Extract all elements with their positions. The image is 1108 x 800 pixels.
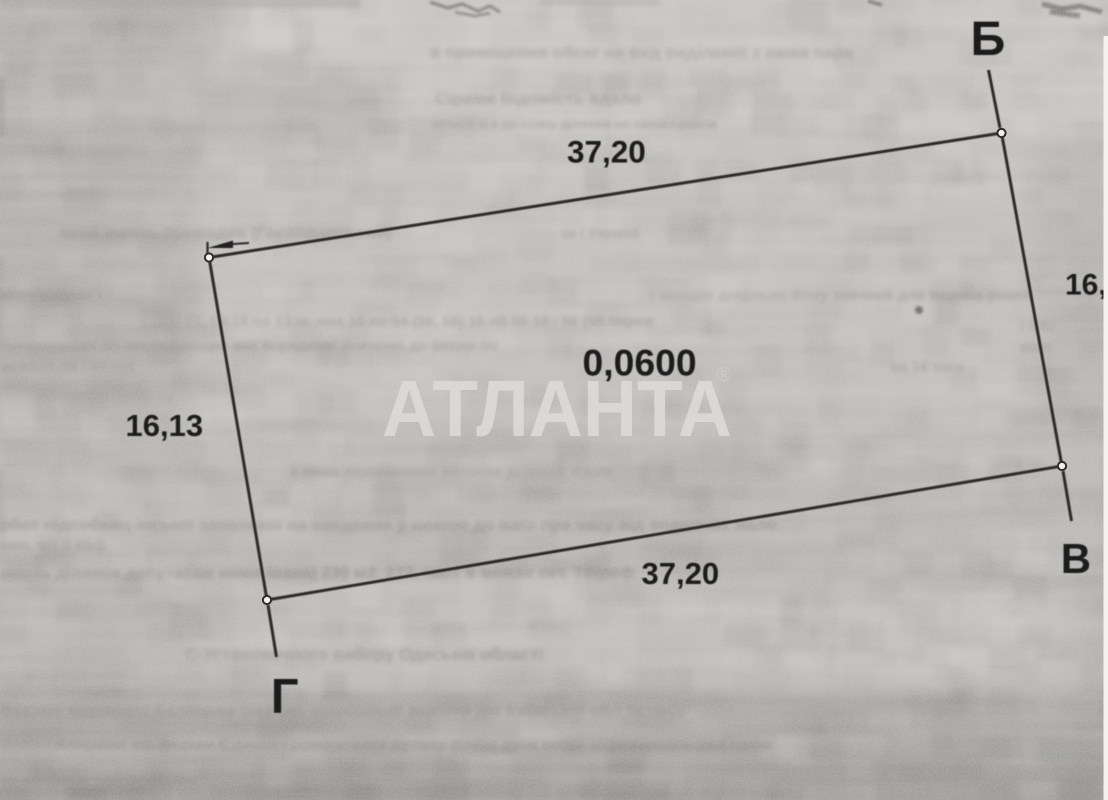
svg-text:16,5: 16,5 [1065,269,1108,302]
svg-text:Г: Г [271,670,299,724]
svg-text:В: В [1061,535,1091,582]
svg-text:16,13: 16,13 [126,408,204,443]
svg-text:0,0600: 0,0600 [583,342,697,384]
svg-text:37,20: 37,20 [642,556,720,591]
svg-text:Б: Б [971,12,1006,66]
svg-text:37,20: 37,20 [567,134,646,170]
